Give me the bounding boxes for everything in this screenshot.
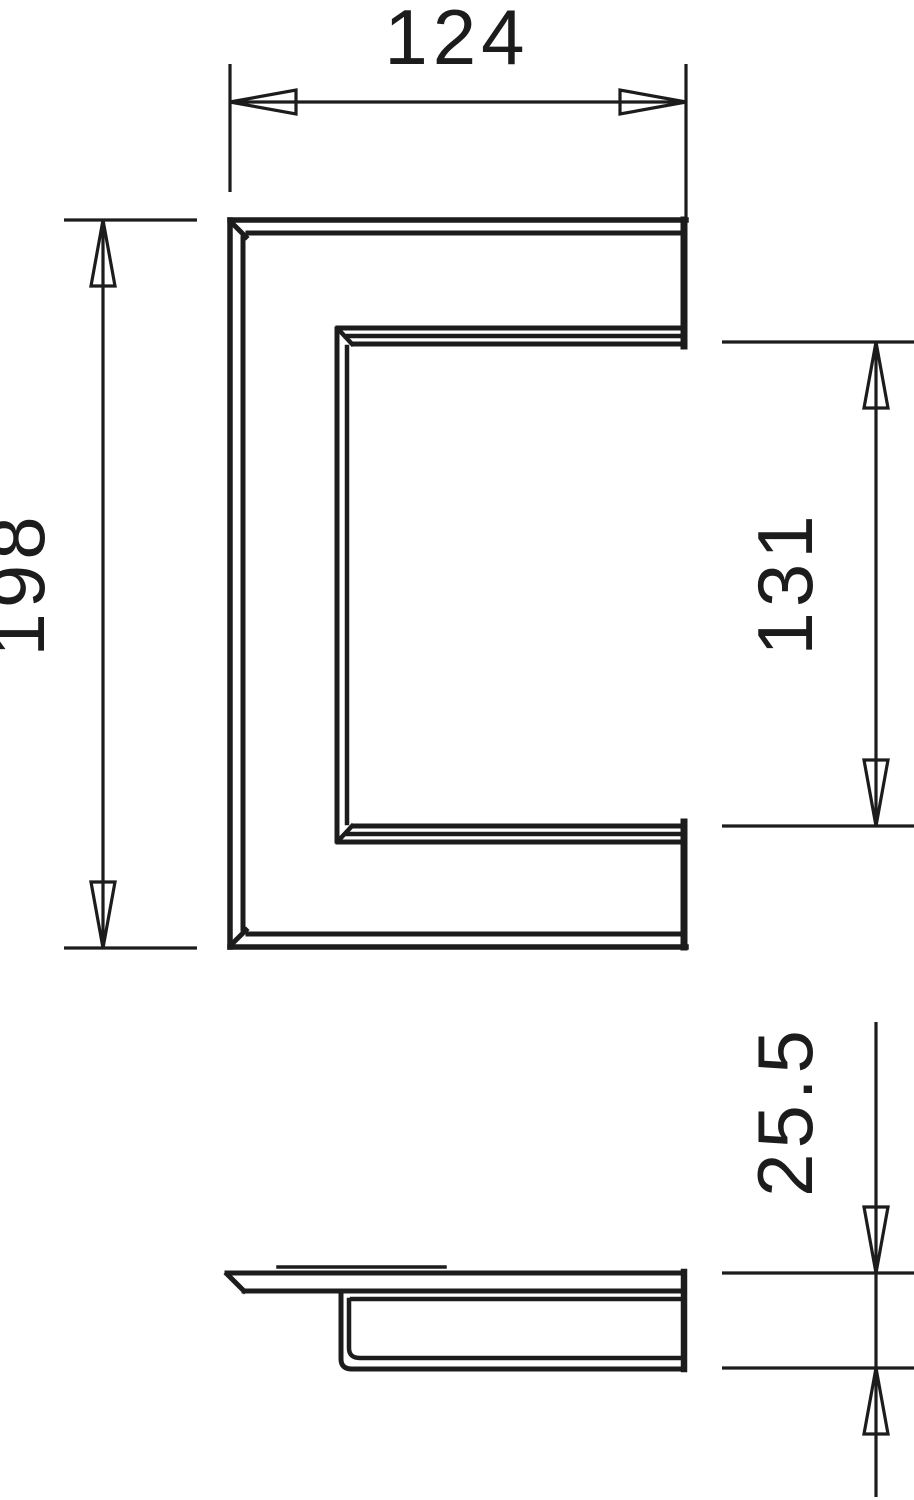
dim-width-label: 124 — [384, 0, 529, 81]
dim-depth-label: 25.5 — [741, 1025, 829, 1197]
side-view — [227, 1267, 684, 1369]
drawing-canvas: 124 198 131 25.5 — [0, 0, 914, 1500]
technical-drawing: 124 198 131 25.5 — [0, 0, 914, 1500]
front-top-left-chamfer — [233, 224, 246, 237]
dim-height-label: 198 — [0, 511, 61, 656]
dim-width — [230, 64, 686, 218]
dim-height — [64, 220, 197, 948]
side-box-inner-contour — [349, 1300, 684, 1358]
front-bottom-left-chamfer — [233, 930, 246, 943]
dim-opening-label: 131 — [741, 510, 829, 655]
side-blade-tip — [227, 1274, 244, 1291]
front-view — [230, 220, 686, 947]
